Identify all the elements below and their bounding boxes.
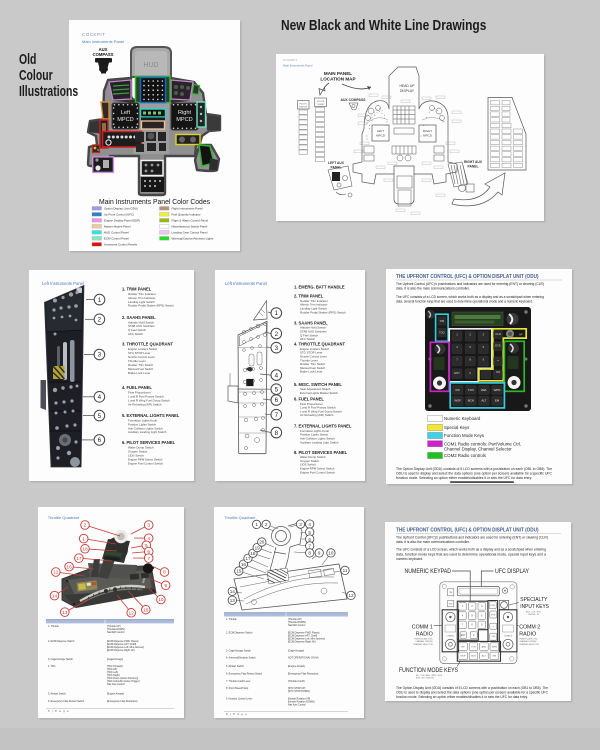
svg-text:20: 20: [259, 540, 265, 545]
svg-text:Auxiliary Landing Light Switch: Auxiliary Landing Light Switch: [128, 430, 167, 434]
svg-text:The UFC consists of a LCD scre: The UFC consists of a LCD screen, which …: [396, 295, 544, 299]
svg-text:9. Nozzles Control Lever: 9. Nozzles Control Lever: [226, 698, 252, 701]
svg-text:ENT: ENT: [461, 634, 466, 637]
svg-text:12: 12: [348, 593, 354, 598]
svg-text:2. ECM Dispense Switch: 2. ECM Dispense Switch: [48, 640, 75, 643]
svg-text:9: 9: [318, 551, 321, 556]
svg-text:AFC Switch: AFC Switch: [128, 332, 143, 336]
svg-text:Nav/ADI Control: Nav/ADI Control: [107, 631, 125, 634]
svg-text:[Throttle Cutoff]: [Throttle Cutoff]: [288, 680, 305, 683]
svg-text:[Emergency Flap Retraction]: [Emergency Flap Retraction]: [288, 673, 319, 676]
svg-text:5: 5: [98, 413, 102, 420]
svg-text:CLR: CLR: [495, 332, 501, 336]
svg-text:SWITCH: SWITCH: [299, 107, 307, 109]
svg-text:1: 1: [82, 536, 85, 542]
svg-text:NOT OPERATIONAL ON NA: NOT OPERATIONAL ON NA: [288, 657, 319, 660]
svg-text:Nav Axis Control: Nav Axis Control: [107, 683, 125, 686]
svg-text:WOF: WOF: [461, 656, 467, 658]
svg-text:EM: EM: [493, 656, 496, 658]
svg-text:PWR/VOLUME CTRL: PWR/VOLUME CTRL: [414, 639, 432, 641]
svg-text:Master Modes Panel: Master Modes Panel: [104, 225, 131, 229]
svg-text:7: 7: [462, 624, 464, 627]
svg-text:Miscellaneous Switch Panel: Miscellaneous Switch Panel: [172, 225, 208, 229]
svg-text:1. TRIM PANEL: 1. TRIM PANEL: [122, 287, 152, 292]
svg-text:CHANNEL SELECTOR: CHANNEL SELECTOR: [413, 643, 433, 646]
svg-text:MPCD: MPCD: [376, 134, 386, 138]
svg-text:Main Instruments Panel: Main Instruments Panel: [283, 64, 313, 68]
svg-text:5 | P a g e: 5 | P a g e: [48, 709, 69, 713]
svg-text:16: 16: [241, 562, 247, 567]
svg-text:Air Refueling (A/R) Switch: Air Refueling (A/R) Switch: [128, 402, 162, 406]
svg-text:ODU is used to display and sel: ODU is used to display and select the da…: [396, 472, 553, 476]
svg-text:LOCATION MAP: LOCATION MAP: [320, 77, 355, 82]
svg-text:AWL: AWL: [481, 388, 488, 392]
svg-text:TOD: TOD: [439, 331, 445, 335]
svg-text:Fuel Quantity Indicator: Fuel Quantity Indicator: [172, 213, 201, 217]
svg-text:1: 1: [98, 297, 102, 304]
svg-text:SPECIALTY: SPECIALTY: [520, 597, 547, 603]
svg-text:11: 11: [53, 570, 58, 576]
svg-text:Engine Fuel Control Switch: Engine Fuel Control Switch: [300, 470, 335, 474]
svg-text:3: 3: [147, 523, 150, 529]
svg-text:14: 14: [52, 593, 58, 599]
svg-text:Flight Instruments Panel: Flight Instruments Panel: [172, 207, 204, 211]
svg-text:WOF: WOF: [454, 399, 461, 403]
svg-text:data. It is also the main comm: data. It is also the main communications…: [396, 540, 470, 544]
svg-text:2: 2: [471, 605, 473, 608]
svg-text:5. EXTERNAL LIGHTS PANEL: 5. EXTERNAL LIGHTS PANEL: [122, 413, 180, 418]
svg-text:3: 3: [275, 345, 279, 352]
svg-text:Option Display Unit (ODU): Option Display Unit (ODU): [104, 207, 138, 211]
svg-text:AUX COMPASS: AUX COMPASS: [341, 98, 367, 102]
svg-text:[Emergency Flap Retraction]: [Emergency Flap Retraction]: [107, 700, 138, 703]
svg-text:1. Throttle: 1. Throttle: [48, 625, 59, 628]
svg-text:RADIO: RADIO: [416, 631, 433, 637]
svg-text:The Upfront Control (UFC)'s pu: The Upfront Control (UFC)'s pushbuttons …: [396, 282, 544, 286]
svg-text:[Cage/Uncage]: [Cage/Uncage]: [288, 650, 304, 653]
svg-text:Warning/Caution/Advisory Light: Warning/Caution/Advisory Lights: [172, 237, 214, 241]
svg-text:BCN: BCN: [468, 399, 474, 403]
svg-text:2: 2: [275, 331, 279, 338]
svg-text:17: 17: [76, 556, 82, 562]
svg-text:Armament Control Panels: Armament Control Panels: [104, 243, 138, 247]
svg-text:BCN - ALT - EMCON: BCN - ALT - EMCON: [416, 677, 434, 680]
svg-text:CHANNEL DISPLAY: CHANNEL DISPLAY: [519, 640, 537, 643]
svg-text:[STO STOP DOWN]: [STO STOP DOWN]: [288, 690, 310, 693]
svg-text:THE UPFRONT CONTROL (UFC) & OP: THE UPFRONT CONTROL (UFC) & OPTION DISPL…: [396, 274, 539, 280]
svg-text:RADIO: RADIO: [519, 631, 536, 637]
svg-text:9: 9: [481, 624, 483, 627]
svg-text:TCN: TCN: [468, 388, 474, 392]
svg-text:1: 1: [275, 310, 279, 317]
svg-text:6. Emergency Flap Retract Sw: 6. Emergency Flap Retract Switch: [226, 673, 263, 676]
svg-text:3: 3: [481, 605, 483, 608]
svg-text:COCKPIT: COCKPIT: [283, 58, 298, 62]
svg-text:[Engine Airstart]: [Engine Airstart]: [288, 665, 305, 668]
svg-text:2: 2: [265, 522, 268, 527]
svg-text:3. THROTTLE QUADRANT: 3. THROTTLE QUADRANT: [122, 342, 173, 347]
svg-text:The Option Display Unit (ODU): The Option Display Unit (ODU) consists o…: [396, 686, 548, 690]
svg-text:ON: ON: [492, 636, 496, 638]
svg-text:[Engine Airstart]: [Engine Airstart]: [107, 693, 124, 696]
svg-text:External Lights Master Switch: External Lights Master Switch: [300, 391, 338, 395]
svg-text:NUMERIC KEYPAD: NUMERIC KEYPAD: [405, 569, 452, 575]
svg-text:3. Cage/Uncage Switch: 3. Cage/Uncage Switch: [48, 658, 74, 661]
svg-text:5: 5: [308, 530, 311, 535]
svg-text:function mode. Selecting an op: function mode. Selecting an option eithe…: [396, 476, 532, 480]
svg-text:Up Front Control (UFC): Up Front Control (UFC): [104, 213, 134, 217]
svg-text:7: 7: [275, 412, 279, 419]
svg-text:8. Short Takeoff Stop: 8. Short Takeoff Stop: [226, 687, 249, 690]
svg-text:Landing Gear Control Panel: Landing Gear Control Panel: [172, 231, 208, 235]
svg-text:The Upfront Control (UFC)'s pu: The Upfront Control (UFC)'s pushbuttons …: [396, 536, 548, 540]
svg-text:MAIN PANEL: MAIN PANEL: [324, 71, 352, 76]
svg-text:7: 7: [147, 556, 150, 562]
svg-text:ALT: ALT: [482, 655, 487, 658]
svg-text:Numeric Keyboard: Numeric Keyboard: [444, 416, 481, 421]
svg-text:Function Mode Keys: Function Mode Keys: [444, 433, 485, 438]
svg-text:Auxiliary Landing Light Switch: Auxiliary Landing Light Switch: [300, 440, 339, 444]
svg-text:The Option Display Unit (ODU): The Option Display Unit (ODU) consists o…: [396, 467, 552, 471]
svg-text:Rudder Pedal Shaker (RPS) Swit: Rudder Pedal Shaker (RPS) Switch: [300, 310, 346, 314]
svg-text:The UFC consists of a LCD scre: The UFC consists of a LCD screen, which …: [396, 548, 546, 552]
svg-text:RIGHT: RIGHT: [423, 129, 433, 133]
svg-text:MPCD: MPCD: [423, 134, 433, 138]
svg-text:ON/OFF - I/P: ON/OFF - I/P: [528, 614, 540, 616]
svg-text:8: 8: [471, 624, 473, 627]
svg-text:8: 8: [163, 570, 166, 576]
svg-text:16: 16: [66, 564, 72, 570]
svg-text:[ECM Dispense Right: All]: [ECM Dispense Right: All]: [107, 649, 135, 652]
svg-text:11: 11: [343, 568, 348, 573]
svg-text:ENT: ENT: [454, 371, 460, 375]
svg-text:10: 10: [158, 597, 164, 603]
svg-text:3: 3: [98, 352, 102, 359]
svg-text:IFF - TCN - AWL - WPN -: IFF - TCN - AWL - WPN - WOF: [416, 674, 443, 677]
svg-text:PANEL: PANEL: [468, 165, 479, 169]
svg-text:4: 4: [308, 522, 311, 527]
svg-text:Left Instruments Panel: Left Instruments Panel: [225, 281, 267, 286]
svg-text:EM: EM: [495, 399, 500, 403]
svg-text:14: 14: [230, 589, 236, 594]
svg-text:CHANNEL SELECTOR: CHANNEL SELECTOR: [519, 643, 539, 646]
svg-text:Rudder Pedal Shaker (RPS) Swit: Rudder Pedal Shaker (RPS) Switch: [128, 304, 174, 308]
svg-text:5: 5: [471, 614, 473, 617]
svg-text:Throttle Quadrant: Throttle Quadrant: [48, 515, 80, 520]
svg-text:NORM: NORM: [317, 104, 323, 106]
svg-text:PWR/VOLUME CTRL: PWR/VOLUME CTRL: [519, 639, 537, 641]
svg-text:15: 15: [143, 607, 149, 613]
svg-text:2: 2: [84, 523, 87, 529]
svg-text:ECM Control Panel: ECM Control Panel: [104, 237, 129, 241]
svg-text:THE UPFRONT CONTROL (UFC) & OP: THE UPFRONT CONTROL (UFC) & OPTION DISPL…: [396, 528, 539, 534]
svg-text:LEFT AUX: LEFT AUX: [328, 161, 345, 165]
svg-text:Throttle Quadrant: Throttle Quadrant: [224, 515, 256, 520]
svg-text:0: 0: [473, 634, 475, 637]
svg-text:1. EMERG. BATT HANDLE: 1. EMERG. BATT HANDLE: [294, 285, 345, 290]
svg-text:13: 13: [230, 598, 236, 603]
svg-text:Air Refueling (A/R) Switch: Air Refueling (A/R) Switch: [300, 413, 334, 417]
svg-text:8: 8: [308, 551, 311, 556]
svg-text:ENT - CLR - EYE: ENT - CLR - EYE: [526, 612, 541, 614]
svg-text:RIGHT AUX: RIGHT AUX: [464, 160, 483, 164]
svg-text:[ECM Dispense Right: All]: [ECM Dispense Right: All]: [288, 641, 316, 644]
svg-text:CLR: CLR: [491, 605, 496, 607]
svg-text:12: 12: [129, 611, 135, 617]
svg-text:COMM 1: COMM 1: [412, 625, 433, 631]
svg-text:HEAD UP: HEAD UP: [399, 84, 415, 88]
svg-text:AWL: AWL: [482, 645, 487, 648]
svg-text:PILOTS: PILOTS: [317, 101, 325, 103]
svg-text:[Cage/Uncage]: [Cage/Uncage]: [107, 658, 123, 661]
svg-text:WPN: WPN: [494, 388, 501, 392]
svg-text:HUD Control Panel: HUD Control Panel: [104, 231, 129, 235]
svg-text:function mode. Selecting an op: function mode. Selecting an option eithe…: [396, 695, 528, 699]
svg-text:6: 6: [275, 397, 279, 404]
svg-text:ALT: ALT: [481, 399, 486, 403]
svg-text:4: 4: [275, 372, 279, 379]
svg-text:6. PILOT SERVICES PANEL: 6. PILOT SERVICES PANEL: [122, 440, 176, 445]
svg-text:COM2 Radio controls: COM2 Radio controls: [444, 453, 487, 458]
svg-text:5: 5: [275, 386, 279, 393]
svg-text:COMM 1: COMM 1: [446, 636, 455, 638]
svg-text:Brake Lock Lever: Brake Lock Lever: [300, 370, 323, 374]
svg-text:Flaps & Water Control Panel: Flaps & Water Control Panel: [172, 219, 209, 223]
svg-text:numeric keyboard.: numeric keyboard.: [396, 557, 423, 561]
svg-text:10: 10: [328, 551, 334, 556]
svg-text:Channel Display, Channel Sele: Channel Display, Channel Selector: [444, 446, 512, 451]
svg-text:7: 7: [308, 544, 311, 549]
svg-text:data, function mode keys that: data, function mode keys that are used t…: [396, 552, 546, 556]
svg-text:EYE: EYE: [491, 615, 496, 617]
svg-text:13: 13: [62, 610, 68, 616]
svg-text:4. FUEL PANEL: 4. FUEL PANEL: [122, 385, 152, 390]
svg-text:ODU is used to display and sel: ODU is used to display and select the da…: [396, 691, 549, 695]
svg-text:9: 9: [164, 583, 167, 589]
svg-text:Nav Axis Control: Nav Axis Control: [288, 704, 306, 707]
svg-text:2. SAAHS PANEL: 2. SAAHS PANEL: [122, 315, 156, 320]
svg-text:Nav/ADI Control: Nav/ADI Control: [288, 624, 306, 627]
svg-text:6: 6: [308, 537, 311, 542]
svg-text:2. ECM Dispense Switch: 2. ECM Dispense Switch: [226, 632, 253, 635]
svg-text:3: 3: [299, 522, 302, 527]
svg-text:I/P: I/P: [519, 333, 523, 337]
svg-text:4: 4: [462, 614, 464, 617]
svg-text:Right: Right: [178, 110, 192, 116]
svg-text:=: =: [493, 626, 495, 628]
svg-text:data. It is also the main comm: data. It is also the main communications…: [396, 287, 470, 291]
svg-text:6: 6: [98, 437, 102, 444]
svg-text:COMM 2: COMM 2: [519, 625, 540, 631]
svg-text:UFC DISPLAY: UFC DISPLAY: [495, 569, 529, 575]
svg-text:EYE: EYE: [495, 344, 501, 348]
svg-text:TIM: TIM: [440, 319, 444, 323]
svg-text:4. Antenna/Elevation Switch: 4. Antenna/Elevation Switch: [226, 657, 256, 660]
svg-text:COMPASS: COMPASS: [93, 52, 114, 57]
svg-text:MPCD: MPCD: [176, 117, 192, 123]
svg-text:ON: ON: [496, 370, 500, 374]
svg-text:1. Throttle: 1. Throttle: [226, 618, 237, 621]
svg-text:15: 15: [236, 569, 242, 574]
svg-text:WPN: WPN: [492, 646, 498, 648]
svg-text:5. Airstart Switch: 5. Airstart Switch: [226, 665, 244, 668]
svg-text:4: 4: [98, 394, 102, 401]
svg-text:TIM: TIM: [449, 592, 453, 594]
svg-text:7. Throttle Cutoff Lever: 7. Throttle Cutoff Lever: [226, 680, 251, 683]
svg-text:Brake Lock Lever: Brake Lock Lever: [128, 371, 151, 375]
svg-text:1: 1: [462, 605, 464, 608]
svg-text:Main Instruments Panel: Main Instruments Panel: [82, 39, 124, 44]
svg-text:5. Airstart Switch: 5. Airstart Switch: [48, 693, 66, 696]
svg-text:1: 1: [255, 522, 258, 527]
svg-text:Engine Fuel Control Switch: Engine Fuel Control Switch: [128, 461, 163, 465]
svg-text:8: 8: [275, 430, 279, 437]
svg-text:LEFT: LEFT: [377, 129, 385, 133]
svg-text:6 | P a g e: 6 | P a g e: [226, 712, 247, 716]
svg-text:6: 6: [481, 614, 483, 617]
svg-text:Special Keys: Special Keys: [444, 425, 470, 430]
svg-text:TCN: TCN: [471, 646, 476, 648]
svg-text:19: 19: [255, 545, 261, 550]
svg-text:IFF: IFF: [456, 388, 461, 392]
svg-text:Engine Display Panel (EDP): Engine Display Panel (EDP): [104, 219, 140, 223]
svg-text:COMM 2: COMM 2: [504, 636, 513, 638]
svg-text:CHANNEL DISPLAY: CHANNEL DISPLAY: [415, 640, 433, 643]
svg-text:18: 18: [82, 547, 88, 553]
svg-text:INPUT KEYS: INPUT KEYS: [520, 604, 549, 610]
svg-text:HUD: HUD: [143, 62, 158, 69]
svg-text:PILOTS: PILOTS: [299, 104, 307, 106]
svg-text:Left Instruments Panel: Left Instruments Panel: [42, 281, 84, 286]
svg-text:Left: Left: [121, 110, 131, 116]
svg-text:DISPLAY: DISPLAY: [400, 89, 415, 93]
svg-text:IFF: IFF: [461, 646, 465, 648]
svg-text:6. Emergency Flap Retract Sw: 6. Emergency Flap Retract Switch: [48, 700, 85, 703]
svg-text:FUNCTION MODE KEYS: FUNCTION MODE KEYS: [399, 668, 458, 674]
svg-text:2: 2: [98, 317, 102, 324]
svg-text:AFC Switch: AFC Switch: [300, 337, 315, 341]
svg-text:BCN: BCN: [471, 656, 476, 658]
svg-text:data, several function keys th: data, several function keys that are use…: [396, 300, 533, 304]
svg-text:COCKPIT: COCKPIT: [82, 32, 105, 37]
svg-text:3. Cage/Uncage Switch: 3. Cage/Uncage Switch: [226, 650, 252, 653]
svg-text:TOD: TOD: [449, 603, 453, 605]
svg-text:4. TDC: 4. TDC: [48, 665, 56, 668]
svg-text:Main Instruments Panel Color C: Main Instruments Panel Color Codes: [99, 197, 210, 206]
svg-text:MPCD: MPCD: [117, 117, 133, 123]
